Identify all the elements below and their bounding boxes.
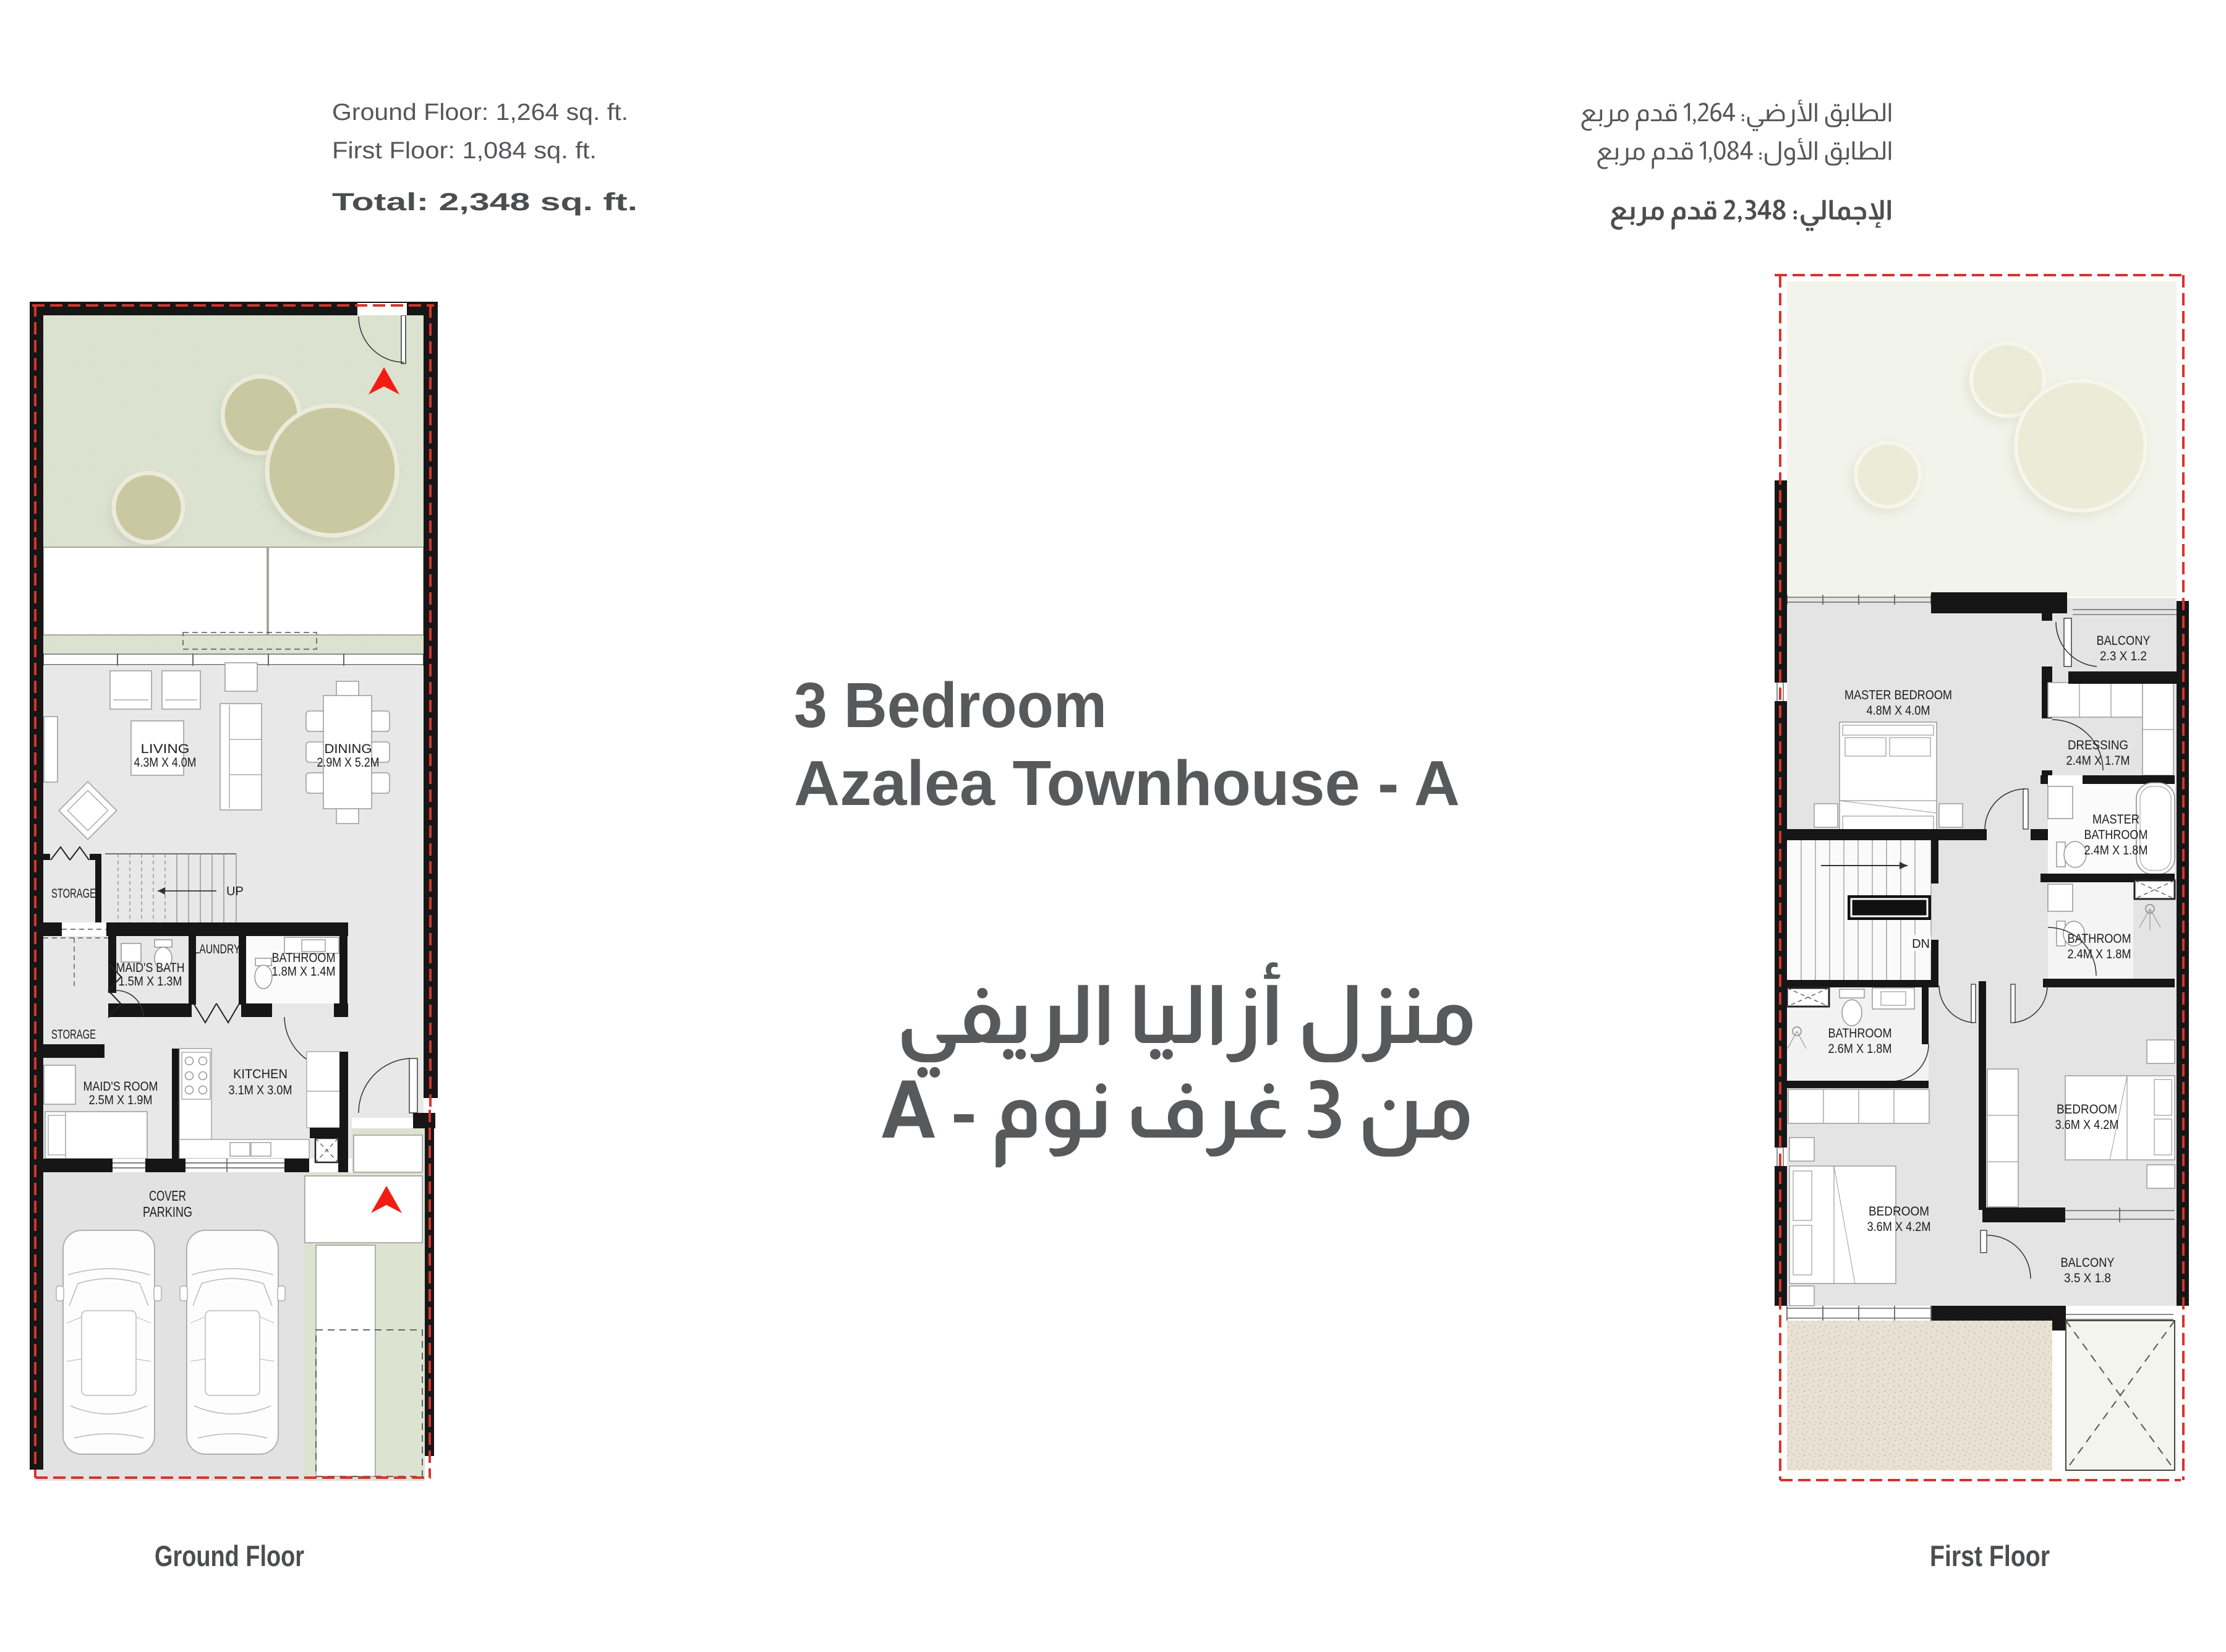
svg-text:LIVING: LIVING <box>141 741 190 756</box>
svg-text:Total: 2,348 sq. ft.: Total: 2,348 sq. ft. <box>332 189 638 216</box>
svg-text:4.8M X 4.0M: 4.8M X 4.0M <box>1867 703 1930 718</box>
svg-text:BATHROOM: BATHROOM <box>2068 931 2131 946</box>
svg-text:UP: UP <box>226 885 244 898</box>
svg-text:STORAGE: STORAGE <box>51 1027 96 1042</box>
svg-text:4.3M X 4.0M: 4.3M X 4.0M <box>134 755 197 770</box>
svg-text:DRESSING: DRESSING <box>2068 738 2128 752</box>
svg-text:1.5M X 1.3M: 1.5M X 1.3M <box>119 974 182 989</box>
svg-text:2.4M X 1.8M: 2.4M X 1.8M <box>2068 947 2131 961</box>
svg-text:BEDROOM: BEDROOM <box>2057 1102 2117 1117</box>
svg-text:MAID'S ROOM: MAID'S ROOM <box>83 1079 158 1094</box>
svg-text:DN: DN <box>1912 937 1930 951</box>
svg-text:3.6M X 4.2M: 3.6M X 4.2M <box>1867 1219 1931 1234</box>
svg-text:BALCONY: BALCONY <box>2097 633 2151 648</box>
svg-text:3 Bedroom: 3 Bedroom <box>794 670 1107 741</box>
svg-text:2.6M X 1.8M: 2.6M X 1.8M <box>1828 1041 1892 1056</box>
svg-text:LAUNDRY: LAUNDRY <box>194 942 241 956</box>
svg-text:BATHROOM: BATHROOM <box>272 950 336 965</box>
svg-text:2.4M X 1.8M: 2.4M X 1.8M <box>2084 843 2148 858</box>
svg-text:MASTER: MASTER <box>2092 812 2139 827</box>
svg-text:3.6M X 4.2M: 3.6M X 4.2M <box>2055 1117 2119 1132</box>
svg-text:Azalea Townhouse - A: Azalea Townhouse - A <box>794 747 1460 819</box>
svg-text:BATHROOM: BATHROOM <box>1828 1026 1892 1041</box>
svg-text:First Floor: 1,084 sq. ft.: First Floor: 1,084 sq. ft. <box>332 138 597 164</box>
svg-text:MAID'S BATH: MAID'S BATH <box>116 960 185 975</box>
svg-text:BEDROOM: BEDROOM <box>1869 1204 1929 1219</box>
svg-text:BALCONY: BALCONY <box>2061 1255 2115 1270</box>
svg-text:COVER: COVER <box>149 1188 186 1204</box>
svg-text:BATHROOM: BATHROOM <box>2084 827 2148 842</box>
svg-text:1.8M X 1.4M: 1.8M X 1.4M <box>272 964 336 979</box>
svg-text:Ground Floor: 1,264 sq. ft.: Ground Floor: 1,264 sq. ft. <box>332 100 628 126</box>
svg-text:3.5 X 1.8: 3.5 X 1.8 <box>2064 1271 2111 1285</box>
svg-text:MASTER BEDROOM: MASTER BEDROOM <box>1844 688 1952 702</box>
svg-text:STORAGE: STORAGE <box>51 886 96 901</box>
svg-text:3.1M X 3.0M: 3.1M X 3.0M <box>229 1083 292 1097</box>
svg-text:Ground Floor: Ground Floor <box>155 1539 304 1572</box>
svg-text:First Floor: First Floor <box>1930 1539 2050 1572</box>
svg-text:2.3 X 1.2: 2.3 X 1.2 <box>2100 649 2147 663</box>
svg-text:2.9M X 5.2M: 2.9M X 5.2M <box>317 755 380 770</box>
svg-text:DINING: DINING <box>325 741 372 756</box>
svg-text:2.5M X 1.9M: 2.5M X 1.9M <box>89 1092 153 1107</box>
svg-text:2.4M X 1.7M: 2.4M X 1.7M <box>2066 753 2130 768</box>
svg-text:KITCHEN: KITCHEN <box>233 1067 288 1081</box>
svg-text:PARKING: PARKING <box>143 1204 192 1220</box>
